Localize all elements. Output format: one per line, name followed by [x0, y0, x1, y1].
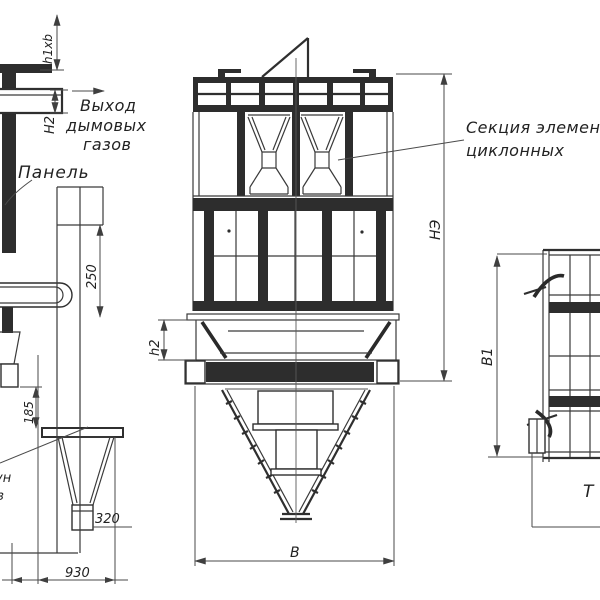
arrowhead [12, 577, 22, 583]
discharge-box-left [1, 364, 18, 387]
drawing-canvas: h1xb Н2 Выход дымовых газов Панель 250 1… [0, 0, 600, 600]
clipped-label-line2: з [0, 489, 4, 504]
gas-outlet-label-line1: Выход [80, 96, 136, 115]
cyclone-section-label-line2: циклонных [466, 141, 565, 160]
gas-outlet-label-line2: дымовых [65, 116, 147, 135]
cyclone-section-label-line1: Секция элемен [466, 118, 600, 137]
lifting-lug-left [218, 69, 241, 77]
dim-label-250: 250 [85, 264, 100, 289]
arrowhead [105, 577, 115, 583]
dim-label-185: 185 [22, 401, 36, 424]
clipped-label-line1: ун [0, 471, 12, 486]
cyclone-element [301, 115, 343, 194]
arrowhead [38, 577, 48, 583]
dim-label-h1xb: h1xb [41, 34, 55, 64]
dim-label-H2: Н2 [43, 116, 58, 134]
column-lower [2, 307, 13, 333]
dim-label-B1: В1 [480, 347, 496, 366]
cyclone-assembly-drawing: h1xb Н2 Выход дымовых газов Панель 250 1… [0, 0, 600, 600]
bolt [227, 229, 230, 232]
hatch-brace [262, 38, 308, 77]
spout [72, 505, 93, 530]
dim-label-B: В [290, 545, 300, 561]
dim-label-930: 930 [65, 566, 90, 581]
dim-label-h2: h2 [148, 339, 163, 356]
dim-label-320: 320 [95, 512, 120, 527]
discharge-box-2 [276, 430, 317, 469]
gas-outlet-label-line3: газов [83, 135, 131, 154]
discharge-box-1 [258, 391, 333, 424]
cyclone-section-leader [338, 140, 464, 160]
panel-label: Панель [18, 163, 90, 183]
dim-label-T: Т [583, 482, 595, 502]
front-view [185, 38, 399, 523]
top-flange [0, 64, 52, 73]
outlet-duct [0, 89, 62, 113]
bolt [360, 230, 363, 233]
cyclone-element [248, 115, 290, 194]
dim-label-NE: НЭ [428, 219, 444, 240]
hopper-cone-left-view [58, 437, 114, 505]
lifting-lug-right [353, 69, 376, 77]
